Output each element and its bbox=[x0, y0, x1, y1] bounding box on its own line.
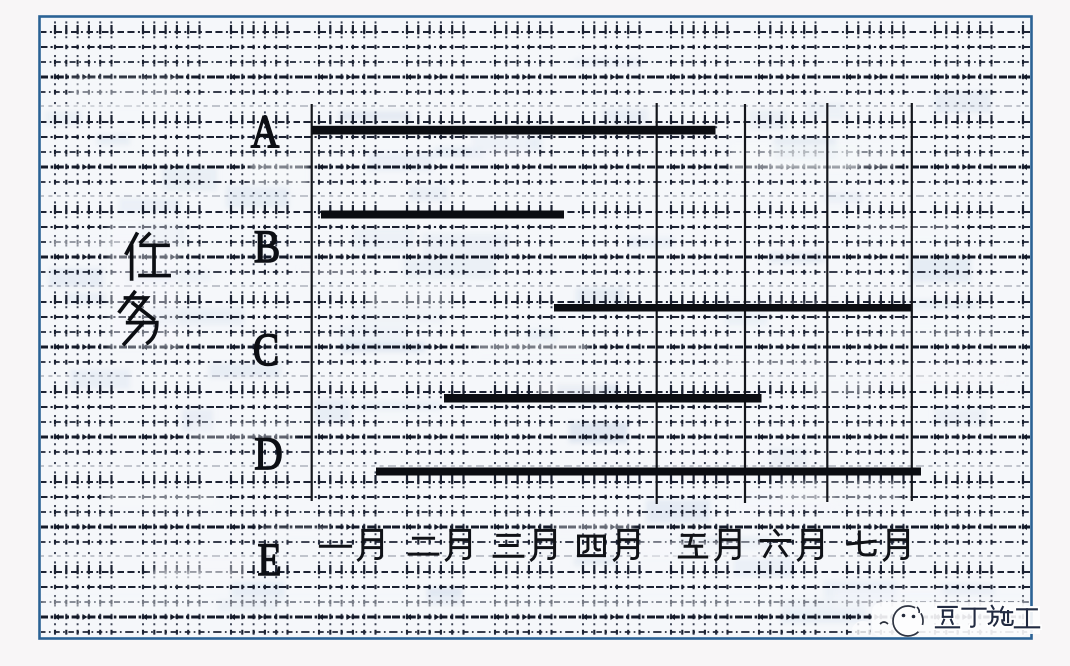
svg-text:E: E bbox=[257, 534, 281, 586]
svg-text:D: D bbox=[254, 428, 283, 480]
svg-text:A: A bbox=[251, 106, 280, 158]
svg-text:C: C bbox=[253, 324, 279, 376]
svg-text:B: B bbox=[254, 221, 280, 273]
